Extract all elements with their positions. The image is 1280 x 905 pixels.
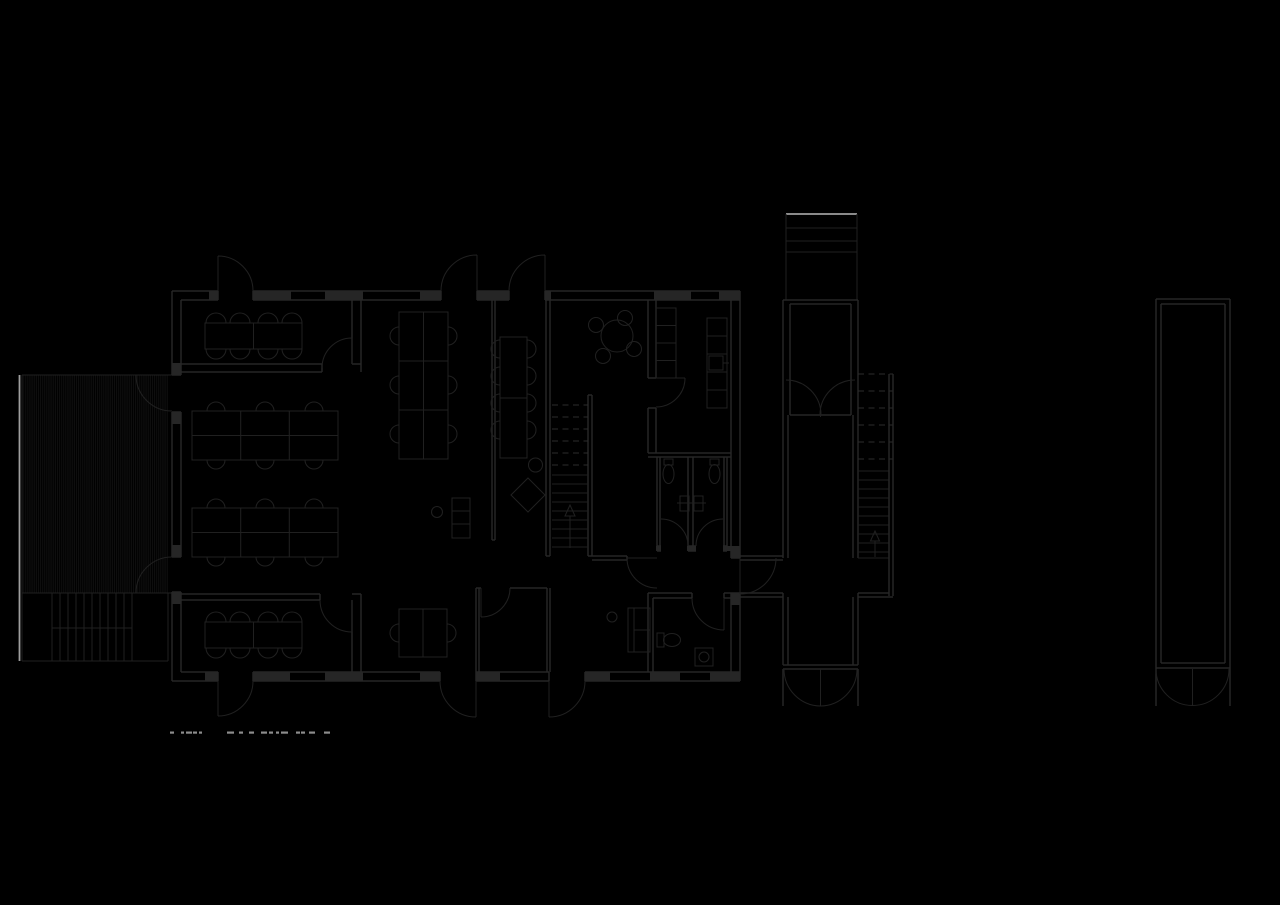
caption-dash [193,732,197,734]
caption-dash [276,732,279,734]
caption-dash [170,732,174,734]
deck-board-hatching [22,375,168,593]
caption-dash [324,732,330,734]
caption-dash [269,732,273,734]
caption-dash [296,732,300,734]
caption-dash [261,732,267,734]
caption-dash [199,732,202,734]
floor-plan-canvas [0,0,1280,905]
caption-dash [249,732,254,734]
caption-dash [309,732,315,734]
caption-dash [181,732,184,734]
caption-dash [281,732,288,734]
caption-dash [239,732,243,734]
caption-dash [186,732,192,734]
caption-dash [301,732,305,734]
caption-dash [227,732,234,734]
